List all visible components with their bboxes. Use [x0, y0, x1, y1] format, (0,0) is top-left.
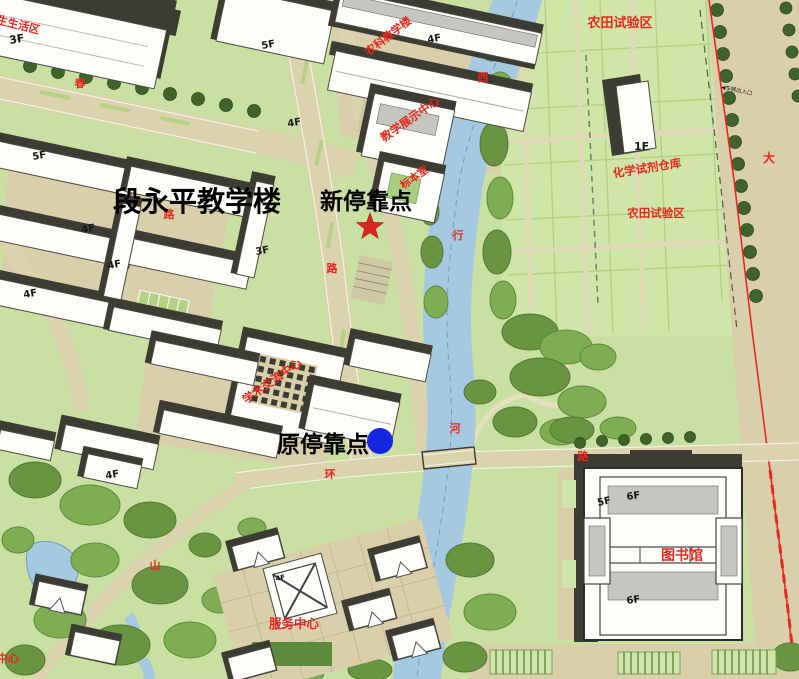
old-stop-dot-marker[interactable]	[367, 428, 393, 454]
campus-map: ◀车辆出入口	[0, 0, 799, 679]
floor-label: 6F	[626, 594, 641, 607]
road-char-lu-1: 路	[327, 261, 339, 275]
campus-map-canvas: ◀车辆出入口	[0, 0, 799, 679]
service-center-label: 服务中心	[269, 616, 320, 631]
building-library	[562, 450, 742, 642]
farmland-south-label: 农田试验区	[626, 206, 685, 220]
center-partial-label: 中心	[0, 651, 19, 665]
river-name-char-1: 西	[478, 71, 489, 84]
road-char-shan: 山	[150, 558, 161, 572]
road-char-huan: 环	[325, 468, 336, 481]
floor-label: 6F	[626, 490, 641, 503]
road-char-chun: 春	[75, 76, 87, 90]
river-name-char-3: 河	[450, 421, 461, 435]
river-name-char-2: 行	[452, 228, 464, 242]
farmland-north-label: 农田试验区	[586, 15, 652, 31]
floor-label: 4F	[275, 573, 286, 583]
road-char-lu-2: 路	[578, 449, 590, 463]
road-char-da: 大	[763, 150, 775, 165]
old-stop-annotation: 原停靠点	[277, 431, 369, 458]
floor-label: 1F	[634, 140, 649, 153]
south-plaza-fields	[490, 650, 776, 674]
floor-label: 3F	[8, 32, 25, 47]
main-building-annotation: 段永平教学楼	[113, 185, 281, 218]
new-stop-annotation: 新停靠点	[320, 188, 412, 215]
library-label: 图书馆	[661, 547, 703, 564]
